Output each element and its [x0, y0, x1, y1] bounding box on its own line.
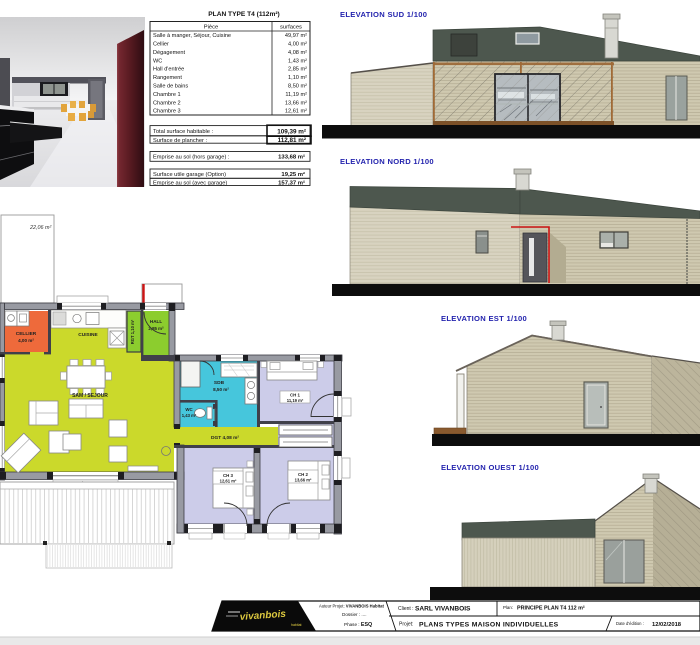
svg-text:Surface de plancher :: Surface de plancher :: [153, 138, 207, 144]
svg-text:109,39 m²: 109,39 m²: [277, 128, 306, 135]
svg-text:habitat: habitat: [291, 623, 302, 627]
svg-text:SDB: SDB: [214, 380, 225, 386]
svg-text:CH 1: CH 1: [290, 393, 301, 398]
svg-text:WC: WC: [185, 407, 193, 412]
svg-text:8,50 m²: 8,50 m²: [288, 84, 307, 90]
svg-text:12,61 m²: 12,61 m²: [285, 109, 307, 115]
svg-text:HALL: HALL: [150, 319, 162, 324]
svg-text:133,68 m²: 133,68 m²: [278, 154, 305, 161]
svg-text:Emprise au sol (avec garage): Emprise au sol (avec garage): [153, 180, 227, 186]
svg-text:Dégagement: Dégagement: [153, 50, 185, 56]
svg-text:Salle à manger, Séjour, Cuisin: Salle à manger, Séjour, Cuisine: [153, 33, 231, 39]
svg-text:CUISINE: CUISINE: [78, 332, 98, 338]
svg-text:Emprise au sol (hors garage) :: Emprise au sol (hors garage) :: [153, 155, 230, 161]
svg-text:CH 2: CH 2: [298, 472, 309, 477]
svg-text:ELEVATION OUEST 1/100: ELEVATION OUEST 1/100: [441, 463, 539, 472]
svg-text:SAM / SEJOUR: SAM / SEJOUR: [72, 393, 108, 399]
svg-text:Cellier: Cellier: [153, 42, 169, 48]
svg-text:49,97 m²: 49,97 m²: [285, 33, 307, 39]
svg-text:Auteur Projet: VIVANBOIS Habit: Auteur Projet: VIVANBOIS Habitat: [319, 604, 384, 609]
svg-text:RGT 1,10 m²: RGT 1,10 m²: [130, 319, 135, 344]
svg-text:2,85 m²: 2,85 m²: [288, 67, 307, 73]
svg-text:Chambre 1: Chambre 1: [153, 92, 181, 98]
svg-text:12,61 m²: 12,61 m²: [220, 479, 237, 484]
svg-text:4,08 m²: 4,08 m²: [288, 50, 307, 56]
svg-text:ELEVATION EST 1/100: ELEVATION EST 1/100: [441, 314, 527, 323]
svg-text:11,19 m²: 11,19 m²: [287, 398, 304, 403]
svg-text:1,43 m²: 1,43 m²: [182, 413, 197, 418]
svg-text:Chambre 2: Chambre 2: [153, 100, 181, 106]
svg-text:CH 3: CH 3: [223, 473, 234, 478]
svg-text:4,00 m²: 4,00 m²: [18, 338, 34, 343]
svg-text:22,06 m²: 22,06 m²: [29, 225, 51, 231]
svg-text:Chambre 3: Chambre 3: [153, 109, 181, 115]
svg-text:12/02/2018: 12/02/2018: [652, 622, 682, 628]
svg-text:Client :: Client :: [398, 606, 414, 612]
svg-text:Projet:: Projet:: [399, 622, 413, 628]
svg-text:Salle de bains: Salle de bains: [153, 84, 188, 90]
svg-text:ELEVATION SUD 1/100: ELEVATION SUD 1/100: [340, 10, 427, 19]
svg-text:Surface utile garage (Option): Surface utile garage (Option): [153, 172, 226, 178]
svg-text:13,66 m²: 13,66 m²: [285, 100, 307, 106]
svg-text:4,00 m²: 4,00 m²: [288, 42, 307, 48]
svg-text:surfaces: surfaces: [280, 24, 302, 30]
svg-text:Dossier : ....: Dossier : ....: [342, 612, 367, 617]
svg-text:13,66 m²: 13,66 m²: [295, 478, 312, 483]
svg-text:112,81 m²: 112,81 m²: [278, 137, 306, 144]
svg-text:ELEVATION NORD 1/100: ELEVATION NORD 1/100: [340, 157, 434, 166]
svg-text:PLANS TYPES MAISON INDIVIDUELL: PLANS TYPES MAISON INDIVIDUELLES: [419, 622, 559, 629]
svg-text:Date d'édition :: Date d'édition :: [616, 621, 644, 626]
svg-text:8,50 m²: 8,50 m²: [213, 387, 229, 392]
svg-text:CELLIER: CELLIER: [16, 331, 37, 337]
svg-text:Rangement: Rangement: [153, 75, 182, 81]
svg-text:WC: WC: [153, 58, 162, 64]
svg-text:1,43 m²: 1,43 m²: [288, 58, 307, 64]
svg-text:Hall d'entrée: Hall d'entrée: [153, 67, 184, 73]
svg-text:SARL VIVANBOIS: SARL VIVANBOIS: [415, 606, 471, 613]
svg-text:PRINCIPE PLAN T4 112 m²: PRINCIPE PLAN T4 112 m²: [517, 606, 585, 612]
svg-text:19,25 m²: 19,25 m²: [281, 171, 305, 178]
svg-text:11,19 m²: 11,19 m²: [285, 92, 307, 98]
svg-text:Pièce: Pièce: [204, 24, 219, 30]
svg-text:Plan:: Plan:: [503, 605, 513, 610]
svg-text:Total surface habitable :: Total surface habitable :: [153, 129, 213, 135]
svg-text:157,37 m²: 157,37 m²: [278, 179, 305, 186]
svg-text:PLAN TYPE T4 (112m²): PLAN TYPE T4 (112m²): [208, 11, 279, 18]
svg-text:1,10 m²: 1,10 m²: [288, 75, 307, 81]
svg-text:DGT 4,08 m²: DGT 4,08 m²: [211, 435, 239, 441]
